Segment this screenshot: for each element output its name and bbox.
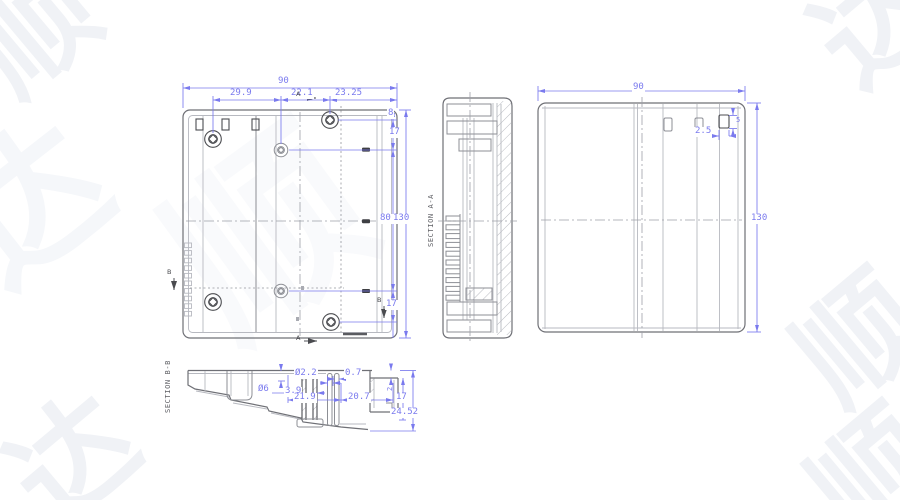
dim-side-slot-width: 2.5 (694, 127, 712, 137)
section-b-label: SECTION B-B (164, 360, 172, 413)
section-marker-a-top: A (296, 90, 300, 98)
dim-b-step: 2 (387, 386, 395, 392)
dim-plan-lower-pitch: 17 (385, 300, 398, 310)
dim-plan-upper-pitch: 17 (388, 128, 401, 138)
section-marker-a-bottom: A (296, 334, 300, 342)
dim-plan-col-mid: 22.1 (290, 89, 314, 99)
dim-b-span-left: 21.9 (293, 393, 317, 403)
vent-fins (185, 243, 192, 316)
dim-side-height-total: 130 (750, 214, 768, 224)
plan-view (174, 98, 397, 341)
side-view (538, 97, 745, 338)
dim-plan-hole-pitch: 80 (379, 214, 392, 224)
cad-drawing-sheet: 顺 达 达 顺 顺 达 顺 (0, 0, 900, 500)
dim-b-bore: Ø2.2 (294, 369, 318, 379)
dim-plan-edge-to-hole: 8 (387, 109, 394, 119)
dim-plan-col-left: 29.9 (229, 89, 253, 99)
dim-b-wall-height: 17 (395, 393, 408, 403)
side-dimensions (538, 86, 761, 332)
heatsink-fins (446, 214, 460, 302)
dim-b-rib-gap: 0.7 (344, 369, 362, 379)
section-marker-b-right: B (377, 296, 381, 304)
section-marker-b-left: B (167, 268, 171, 276)
dim-plan-width-total: 90 (277, 77, 290, 87)
section-a-label: SECTION A-A (427, 194, 435, 247)
dim-b-span-right: 20.7 (347, 393, 371, 403)
dim-plan-height-total: 130 (392, 214, 410, 224)
dim-b-boss: Ø6 (257, 385, 270, 395)
dim-side-width-total: 90 (632, 83, 645, 93)
dim-b-overall-height: 24.52 (390, 408, 419, 418)
section-a-view (438, 92, 517, 344)
dim-plan-col-right: 23.25 (334, 89, 363, 99)
drawing-canvas (0, 0, 900, 500)
dim-side-slot-height: 5 (735, 117, 741, 125)
